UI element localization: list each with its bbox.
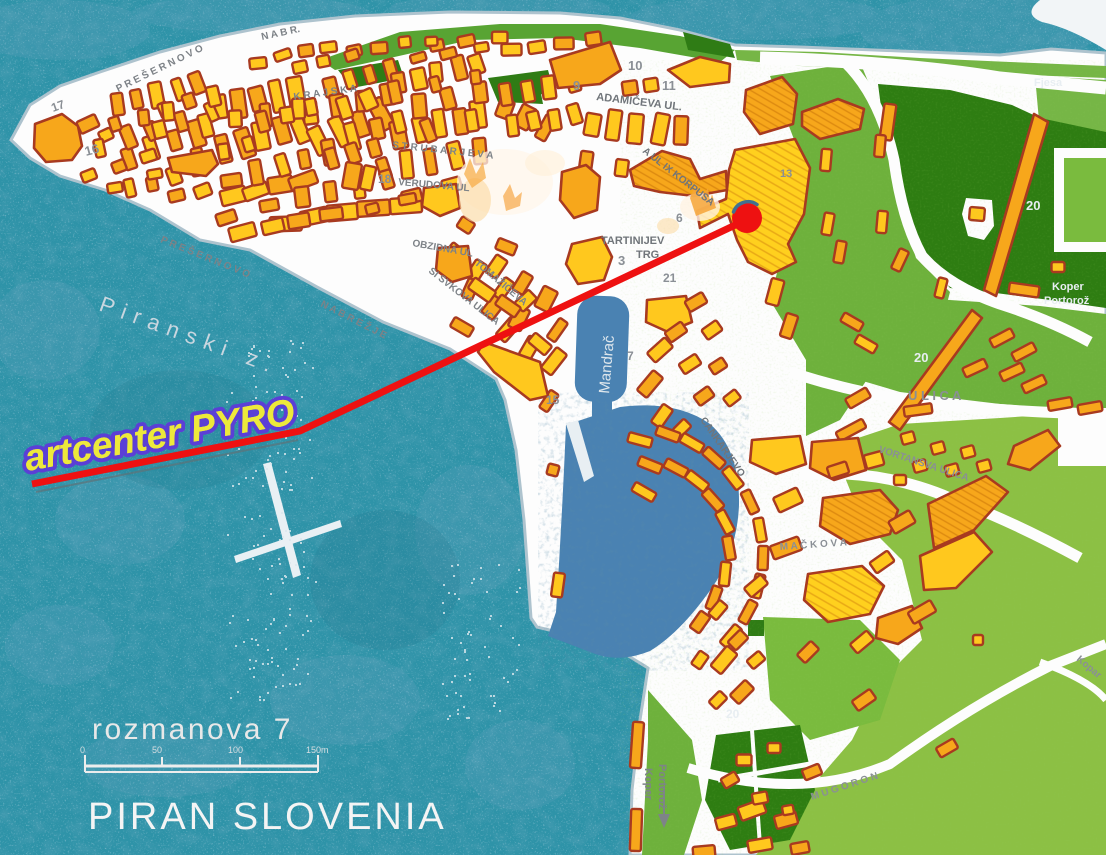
svg-text:100: 100 xyxy=(228,745,243,755)
svg-text:7: 7 xyxy=(627,349,634,363)
svg-text:9: 9 xyxy=(573,78,580,93)
svg-text:Portorož: Portorož xyxy=(656,764,668,810)
svg-text:Portorož: Portorož xyxy=(1044,295,1090,307)
svg-text:Koper: Koper xyxy=(642,768,654,801)
svg-text:20: 20 xyxy=(726,707,740,721)
svg-text:10: 10 xyxy=(628,58,642,73)
svg-text:PIRAN SLOVENIA: PIRAN SLOVENIA xyxy=(88,796,447,838)
svg-text:18: 18 xyxy=(378,172,392,186)
svg-text:13: 13 xyxy=(780,168,792,180)
svg-text:Fjesa: Fjesa xyxy=(1034,77,1063,89)
svg-text:U L I C A: U L I C A xyxy=(908,388,962,403)
svg-text:150m: 150m xyxy=(306,745,329,755)
svg-text:Koper: Koper xyxy=(1052,281,1085,293)
svg-text:0: 0 xyxy=(80,745,85,755)
svg-text:6: 6 xyxy=(676,211,683,225)
svg-text:20: 20 xyxy=(1026,198,1040,213)
svg-text:TARTINIJEV: TARTINIJEV xyxy=(601,235,665,247)
svg-text:21: 21 xyxy=(663,271,677,285)
svg-text:15: 15 xyxy=(546,393,560,407)
svg-text:20: 20 xyxy=(914,350,928,365)
svg-text:3: 3 xyxy=(618,253,625,268)
svg-text:11: 11 xyxy=(662,78,676,93)
svg-text:50: 50 xyxy=(152,745,162,755)
svg-text:TRG: TRG xyxy=(636,249,659,261)
svg-text:rozmanova 7: rozmanova 7 xyxy=(92,713,293,746)
